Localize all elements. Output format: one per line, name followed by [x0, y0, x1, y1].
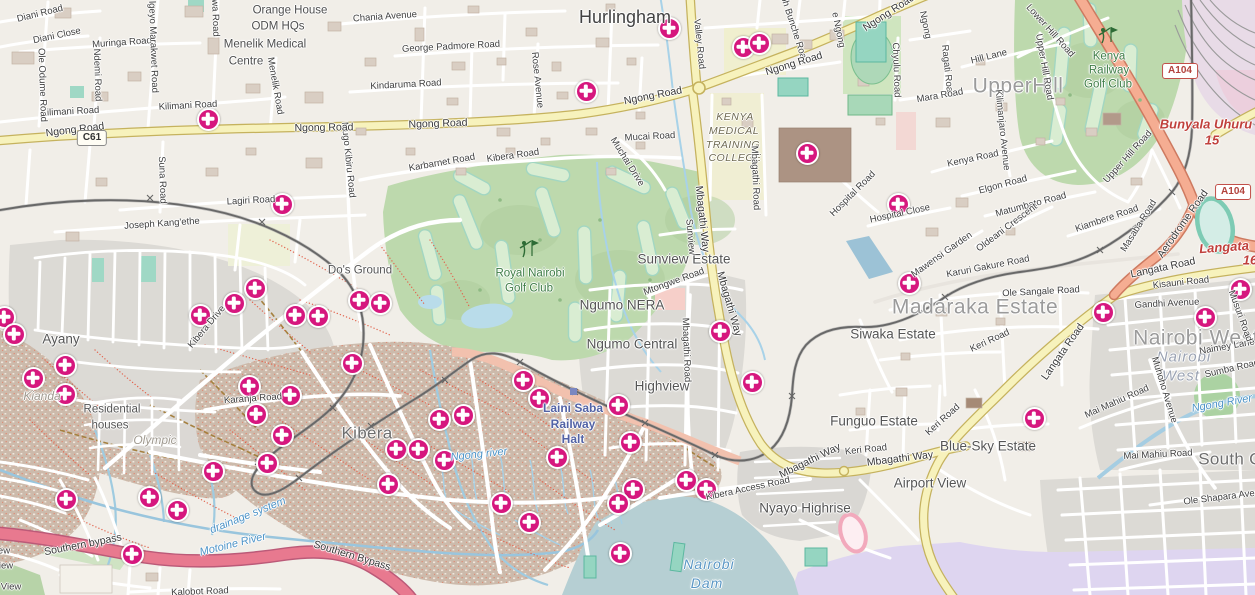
badge-layer: A104A104C61 [0, 0, 1255, 595]
map-canvas[interactable]: HurlinghamUpperHillMadaraka EstateNairob… [0, 0, 1255, 595]
route-badge: C61 [77, 130, 107, 146]
route-badge: A104 [1162, 63, 1198, 79]
route-badge: A104 [1215, 184, 1251, 200]
